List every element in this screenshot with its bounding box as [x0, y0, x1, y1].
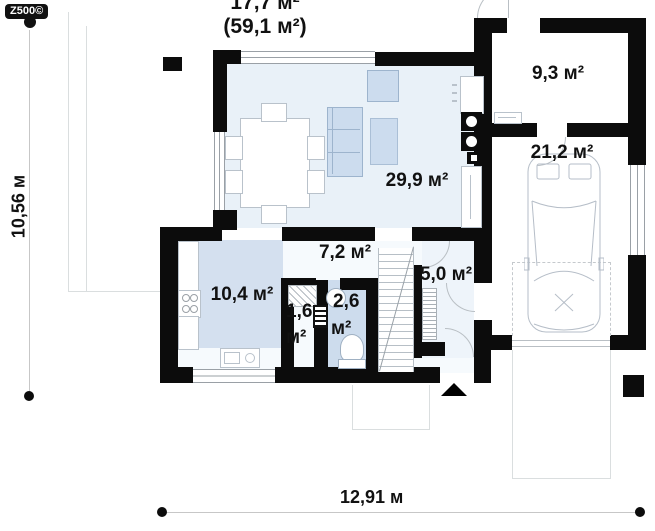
- z500-logo-dot-icon: [24, 16, 36, 28]
- width-dimension-line: [162, 512, 640, 513]
- chair: [225, 170, 243, 194]
- back-door-arc: [477, 0, 508, 18]
- wall: [160, 367, 193, 383]
- stove-unit: [467, 152, 482, 164]
- toilet-tank: [338, 359, 366, 369]
- wall: [412, 227, 474, 241]
- dimension-endpoint-dot: [635, 507, 645, 517]
- stove-burner: [461, 112, 482, 131]
- staircase: [378, 248, 414, 372]
- kitchen-sink: [220, 348, 260, 368]
- pantry-label-unit: м²: [286, 327, 306, 348]
- wall: [366, 278, 378, 370]
- tick: [452, 92, 457, 94]
- chimney-square: [163, 57, 182, 71]
- wall: [610, 335, 646, 350]
- coffee-table: [370, 118, 398, 165]
- armchair: [367, 70, 399, 102]
- fridge: [460, 76, 484, 114]
- wall: [540, 18, 630, 33]
- floor-area-gross-label: (59,1 м²): [195, 15, 335, 38]
- living-room-label: 29,9 м²: [372, 170, 462, 191]
- wall: [567, 123, 628, 137]
- sofa: [327, 107, 363, 177]
- wall: [474, 337, 491, 383]
- kitchen-label: 10,4 м²: [197, 284, 287, 305]
- kitchen-counter: [178, 316, 199, 350]
- kitchen-counter: [178, 241, 199, 292]
- kitchen-counter: [461, 166, 482, 228]
- wall: [410, 342, 445, 356]
- entry-label: 5,0 м²: [410, 264, 482, 285]
- tick: [452, 100, 457, 102]
- window: [630, 165, 645, 255]
- dimension-endpoint-dot: [24, 391, 34, 401]
- entrance-triangle-icon: [441, 383, 467, 396]
- wall: [474, 18, 507, 33]
- wall: [628, 255, 646, 335]
- height-dimension-label: 10,56 м: [9, 157, 30, 257]
- chair: [307, 170, 325, 194]
- wall: [160, 227, 178, 383]
- window: [241, 51, 375, 64]
- stove-burner: [461, 132, 482, 151]
- dining-table: [240, 118, 310, 208]
- wall: [282, 227, 375, 241]
- porch-outline: [352, 385, 430, 430]
- chair: [261, 205, 287, 224]
- pillar-square: [623, 375, 644, 397]
- door-leaf-line: [508, 0, 509, 18]
- wall: [375, 52, 478, 66]
- window: [214, 132, 225, 212]
- storage-shelf: [494, 112, 522, 124]
- wall: [492, 123, 537, 137]
- garage-door-line: [512, 340, 610, 347]
- roof-outline-line: [68, 12, 69, 291]
- wall: [275, 367, 440, 383]
- roof-outline-line: [68, 291, 163, 292]
- garage-label: 21,2 м²: [512, 142, 612, 163]
- storage-room-label: 9,3 м²: [513, 63, 603, 84]
- roof-outline-line: [86, 26, 87, 291]
- width-dimension-label: 12,91 м: [340, 487, 403, 508]
- wc-label-value: 2,6: [333, 291, 359, 312]
- wall: [213, 50, 241, 64]
- entry-radiator: [422, 288, 437, 340]
- car-top-view: [524, 146, 604, 341]
- chair: [225, 136, 243, 160]
- chair: [307, 136, 325, 160]
- chair: [261, 103, 287, 122]
- pantry-label-value: 1,6: [286, 301, 312, 322]
- hall-label: 7,2 м²: [302, 242, 388, 263]
- ladder-icon: [313, 305, 328, 328]
- tick: [452, 84, 457, 86]
- wall: [628, 18, 646, 165]
- driveway-outline: [512, 350, 611, 479]
- floor-plan-canvas: Z500© 10,56 м 12,91 м 17,7 м² (59,1 м²): [0, 0, 655, 531]
- floor-area-total-label: 17,7 м²: [195, 0, 335, 14]
- window: [193, 369, 275, 383]
- dimension-endpoint-dot: [157, 507, 167, 517]
- wc-label-unit: м²: [331, 318, 351, 339]
